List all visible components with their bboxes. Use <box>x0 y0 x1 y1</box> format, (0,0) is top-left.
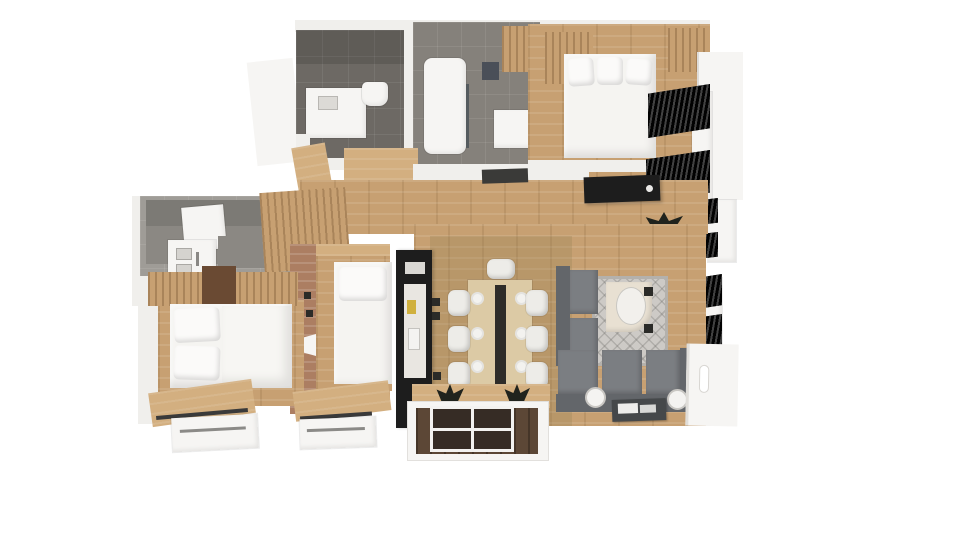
bath-shelf <box>482 62 499 80</box>
desk-accessory <box>644 324 653 333</box>
yellow-accessory <box>407 300 416 314</box>
pillow <box>173 307 221 343</box>
place-setting <box>471 327 484 340</box>
deck-panel <box>474 409 512 428</box>
floor-socket <box>432 312 440 320</box>
deck-panel-grid <box>430 406 514 452</box>
desk-accessory <box>644 287 653 296</box>
window-box <box>299 417 376 450</box>
exterior-wall-southeast <box>685 344 738 427</box>
pillow <box>567 57 595 87</box>
sofa-cushion <box>570 270 598 314</box>
bathroom-main-floor <box>413 22 540 180</box>
master-bed <box>564 54 656 158</box>
floor-plan-render <box>0 0 960 540</box>
magazine <box>640 404 656 413</box>
deck-panel <box>433 431 471 450</box>
place-setting <box>471 292 484 305</box>
unit-hood <box>405 262 425 274</box>
balcony-railing-frame <box>408 402 548 460</box>
faucet <box>196 252 199 266</box>
dining-chair <box>448 290 470 316</box>
deck-panel <box>433 409 471 428</box>
bathtub-shower <box>424 58 466 154</box>
hall-sideboard <box>584 175 661 204</box>
dining-chair <box>448 326 470 352</box>
railing-bar <box>180 426 246 432</box>
desk-chair <box>616 287 646 325</box>
bedroom-single-headwall <box>316 244 390 256</box>
toilet <box>362 82 388 106</box>
magazine <box>618 403 638 414</box>
pillow <box>173 345 220 381</box>
coffee-table <box>612 398 667 422</box>
decor-bowl <box>646 185 653 192</box>
cooktop <box>408 328 420 350</box>
pillow <box>597 57 623 85</box>
dining-chair <box>487 259 515 279</box>
wall-socket <box>304 292 311 299</box>
window-box <box>171 414 259 452</box>
doormat <box>482 168 528 184</box>
unit-worktop <box>404 284 426 378</box>
door-handle-panel <box>700 366 708 392</box>
railing-bar <box>307 427 365 432</box>
sofa-cushion <box>646 350 680 394</box>
pillow <box>625 58 653 86</box>
bathroom-small-dark-band <box>296 30 418 64</box>
wall-socket <box>306 310 313 317</box>
globe-floor-lamp <box>585 387 606 408</box>
single-bed <box>334 262 392 390</box>
sink-bowl <box>176 248 192 260</box>
pillow <box>339 267 387 301</box>
duvet-fold <box>222 306 290 386</box>
shower-glass-screen <box>466 84 469 148</box>
deck-panel <box>474 431 512 450</box>
place-setting <box>471 360 484 373</box>
floor-socket <box>432 298 440 306</box>
sink-basin <box>318 96 338 110</box>
walnut-cabinet <box>202 266 236 306</box>
double-bed <box>170 304 292 388</box>
dining-chair <box>526 290 548 316</box>
sofa-cushion <box>602 350 642 394</box>
table-runner <box>495 285 506 393</box>
dining-chair <box>526 326 548 352</box>
floor-socket <box>433 372 441 380</box>
